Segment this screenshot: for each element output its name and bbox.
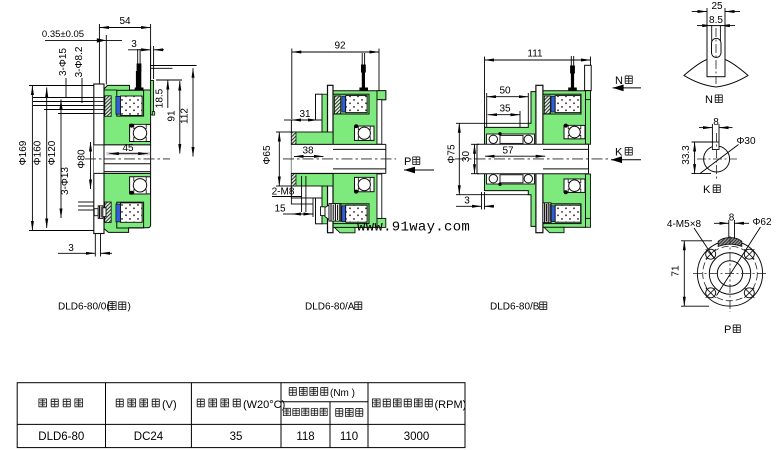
svg-text:3-Φ8.2: 3-Φ8.2 [74,46,85,77]
svg-text:Φ75: Φ75 [447,144,458,164]
svg-text:111: 111 [527,49,543,60]
svg-text:8.5: 8.5 [709,15,723,26]
svg-text:33.3: 33.3 [681,145,692,165]
svg-text:P: P [404,156,411,168]
svg-text:3: 3 [68,243,74,254]
svg-text:(W20°C): (W20°C) [243,399,285,411]
svg-text:18.5: 18.5 [155,88,166,108]
svg-text:Φ30: Φ30 [736,136,756,147]
svg-text:DC24: DC24 [134,431,164,443]
svg-text:P: P [724,324,731,336]
svg-text:91: 91 [167,110,178,122]
svg-text:8: 8 [713,117,719,128]
svg-text:25: 25 [711,1,723,12]
svg-text:38: 38 [302,145,314,156]
svg-text:(V): (V) [162,399,177,411]
svg-text:Φ169: Φ169 [18,140,29,165]
svg-text:(Nm ): (Nm ) [330,388,355,399]
svg-text:K: K [615,147,623,159]
svg-text:Φ65: Φ65 [262,145,273,165]
svg-text:3-Φ15: 3-Φ15 [58,48,69,76]
svg-text:Φ120: Φ120 [47,140,58,165]
svg-text:112: 112 [180,108,191,124]
svg-text:(RPM): (RPM) [435,399,467,411]
svg-text:8: 8 [729,213,735,224]
svg-text:DLD6-80/0(: DLD6-80/0( [58,302,110,313]
svg-text:Φ160: Φ160 [33,140,44,165]
svg-text:92: 92 [334,41,346,52]
svg-text:3-Φ13: 3-Φ13 [60,167,71,195]
svg-text:71: 71 [670,265,681,277]
svg-text:3000: 3000 [404,431,430,443]
svg-text:3: 3 [464,196,470,207]
svg-text:57: 57 [502,145,514,156]
svg-text:50: 50 [499,86,511,97]
svg-text:Φ62: Φ62 [752,217,772,228]
svg-text:N: N [615,75,623,87]
svg-text:31: 31 [299,109,311,120]
svg-text:0.35±0.05: 0.35±0.05 [42,29,84,40]
svg-text:N: N [705,94,713,106]
svg-text:35: 35 [230,431,243,443]
svg-text:15: 15 [274,204,286,215]
svg-text:DLD6-80/B: DLD6-80/B [490,302,540,313]
svg-text:K: K [703,184,711,196]
svg-text:DLD6-80: DLD6-80 [38,431,84,443]
svg-text:www.91way.com: www.91way.com [357,220,470,236]
svg-text:): ) [128,302,131,313]
svg-text:118: 118 [296,431,314,443]
svg-text:30: 30 [461,151,472,163]
svg-text:45: 45 [122,143,134,154]
svg-text:54: 54 [119,16,131,27]
svg-text:35: 35 [499,104,511,115]
svg-text:110: 110 [340,431,358,443]
svg-text:3: 3 [131,39,137,50]
svg-text:4-M5×8: 4-M5×8 [667,219,702,230]
svg-text:2-M8: 2-M8 [272,187,295,198]
svg-text:DLD6-80/A: DLD6-80/A [305,302,355,313]
